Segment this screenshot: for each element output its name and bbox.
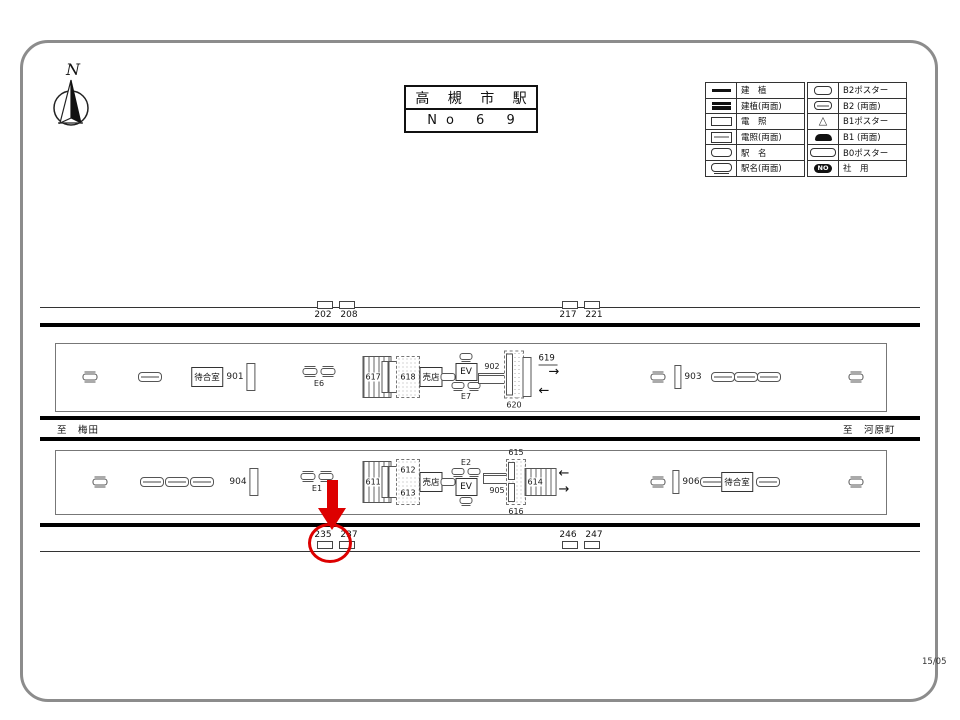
shape	[85, 381, 96, 382]
item-sym2	[651, 476, 666, 487]
item-sym2	[93, 476, 108, 487]
item-oval	[190, 477, 214, 487]
item-room: 待合室	[191, 367, 223, 387]
b2-poster-sign-icon	[757, 372, 781, 382]
shape	[460, 497, 473, 504]
track-line-top	[40, 307, 920, 308]
legend-symbol-cell	[808, 145, 839, 160]
shape	[653, 371, 664, 372]
exit-label: E7	[461, 392, 471, 401]
shape	[303, 471, 314, 472]
legend-symbol-cell	[706, 145, 737, 160]
item-arrows: 619→←	[539, 353, 560, 396]
exit-label: E1	[312, 484, 322, 493]
arrow-left-icon: ←	[559, 468, 570, 479]
b2-poster-sign-icon	[140, 477, 164, 487]
shape	[305, 376, 316, 377]
highlight-arrow	[327, 480, 338, 508]
shape	[562, 541, 600, 549]
item-oval	[711, 372, 735, 382]
sign-slot-icon	[562, 301, 578, 309]
shape	[93, 478, 108, 485]
sign-slot-icon	[339, 301, 355, 309]
shape	[653, 486, 664, 487]
stairs-area: 611	[363, 461, 392, 503]
item-numbar: 901	[226, 363, 255, 391]
position-number: 901	[226, 372, 243, 382]
legend-row: B0ポスター	[808, 145, 906, 161]
shape	[562, 301, 600, 309]
track-sign-marker: 246247	[558, 530, 604, 549]
item-dashedbox: 618	[396, 356, 420, 398]
shape	[737, 376, 755, 377]
station-name-sign-icon	[849, 371, 864, 382]
shape	[321, 471, 332, 472]
item-densho: 902	[478, 362, 506, 384]
shape: NO	[814, 164, 833, 173]
item-sym2	[83, 371, 98, 382]
position-number: 611	[365, 477, 382, 486]
legend-label: 社 用	[839, 161, 906, 176]
shape	[470, 390, 479, 391]
station-title: 高 槻 市 駅	[406, 87, 536, 108]
shape	[452, 468, 465, 475]
track-rail-1	[40, 323, 920, 327]
sign-slot-icon	[584, 301, 600, 309]
station-name-sign-icon	[303, 366, 318, 377]
small-sign-icon	[452, 468, 465, 477]
stairs-area: 617	[363, 356, 392, 398]
position-number: 613	[399, 488, 416, 497]
shape	[303, 368, 318, 375]
item-sym2	[651, 371, 666, 382]
shape	[851, 371, 862, 372]
densho-icon	[711, 117, 732, 126]
highlight-circle	[308, 523, 352, 563]
sign-board-icon	[523, 357, 532, 397]
station-diagram: N 高 槻 市 駅 No 6 9 建 植建植(両面)電 照電照(両面)駅 名駅名…	[0, 0, 960, 720]
track-sign-marker: 202208	[313, 301, 359, 320]
shape	[168, 481, 186, 482]
shape	[712, 89, 731, 93]
ekimei-ryomen-icon	[711, 163, 732, 174]
room-box: 売店	[419, 472, 442, 492]
legend-row: 建 植	[706, 83, 804, 99]
shape	[714, 173, 729, 174]
shape	[460, 497, 473, 506]
station-name-sign-icon	[301, 471, 316, 482]
shape	[95, 486, 106, 487]
shape	[849, 478, 864, 485]
sign-slot-icon	[317, 301, 333, 309]
item-ev: E2EV	[452, 458, 481, 506]
legend-label: 建 植	[737, 83, 804, 98]
sheet-code: 15/05	[922, 657, 947, 667]
legend-label: B2 (両面)	[839, 99, 906, 114]
shape	[711, 117, 732, 126]
shape	[143, 481, 161, 482]
item-vrect	[523, 357, 532, 397]
item-oval	[734, 372, 758, 382]
legend-table: 建 植建植(両面)電 照電照(両面)駅 名駅名(両面)	[705, 82, 805, 177]
legend-label: B2ポスター	[839, 83, 906, 98]
shape	[849, 373, 864, 380]
b2-poster-sign-icon	[734, 372, 758, 382]
shape	[651, 373, 666, 380]
station-name-sign-icon	[93, 476, 108, 487]
position-number: 902	[484, 362, 499, 371]
item-stairs: 617	[363, 356, 392, 398]
position-number: 903	[684, 372, 701, 382]
room-box: 売店	[419, 367, 442, 387]
b2-poster-sign-icon	[165, 477, 189, 487]
legend-label: B0ポスター	[839, 145, 906, 160]
station-name-sign-icon	[651, 371, 666, 382]
item-numbar2: 903	[674, 365, 701, 389]
legend-row: △B1ポスター	[808, 114, 906, 130]
shape	[759, 481, 777, 482]
shape	[470, 476, 479, 477]
track-rail-2	[40, 416, 920, 420]
shape	[460, 353, 473, 362]
kenshoku-ryomen-icon	[712, 102, 731, 110]
legend-symbol-cell	[706, 130, 737, 145]
room-box: 待合室	[191, 367, 223, 387]
sign-board-icon	[250, 468, 259, 496]
kenshoku-icon	[712, 89, 731, 93]
densho-ryomen-icon	[711, 132, 732, 143]
legend-symbol-cell	[706, 161, 737, 176]
shape	[714, 376, 732, 377]
destination-right: 至 河原町	[843, 422, 896, 436]
position-number: 208	[339, 310, 359, 320]
shape	[653, 381, 664, 382]
station-name-sign-icon	[321, 366, 336, 377]
shape	[141, 376, 159, 377]
shape	[712, 106, 731, 110]
station-number: No 6 9	[406, 108, 536, 131]
b2-ryomen-icon	[814, 101, 832, 110]
shape	[452, 468, 481, 477]
legend-symbol-cell	[706, 99, 737, 114]
planned-area	[504, 350, 524, 398]
exit-label: E6	[314, 379, 324, 388]
legend-row: NO社 用	[808, 161, 906, 176]
compass-icon	[48, 78, 96, 132]
shape	[651, 478, 666, 485]
position-number: 906	[682, 477, 699, 487]
legend-label: B1ポスター	[839, 114, 906, 129]
position-number: 202	[313, 310, 333, 320]
shape: ←→	[559, 468, 570, 495]
position-number: 612	[399, 466, 416, 475]
legend-row: 駅 名	[706, 145, 804, 161]
position-number: 617	[365, 372, 382, 381]
legend-row: B2ポスター	[808, 83, 906, 99]
shape	[85, 371, 96, 372]
shape	[452, 382, 481, 391]
shape	[712, 102, 731, 106]
shape	[760, 376, 778, 377]
arrow-left-icon: ←	[539, 385, 550, 396]
item-oval	[165, 477, 189, 487]
shape	[382, 466, 389, 498]
small-sign-icon	[460, 353, 473, 362]
legend-label: 電照(両面)	[737, 130, 804, 145]
shape: △	[819, 116, 827, 126]
legend-symbol-cell	[808, 99, 839, 114]
legend-label: 建植(両面)	[737, 99, 804, 114]
track-rail-3	[40, 437, 920, 441]
b2-poster-sign-icon	[190, 477, 214, 487]
shape	[321, 368, 336, 375]
item-dashedbars: 615616	[506, 448, 526, 516]
arrow-right-icon: →	[549, 366, 560, 377]
track-rail-4	[40, 523, 920, 527]
shape	[319, 473, 334, 480]
b2-poster-icon	[814, 86, 832, 95]
legend-label: 駅 名	[737, 145, 804, 160]
item-dashedbars: 620	[504, 350, 524, 409]
stairs-area: 614	[525, 468, 557, 496]
b2-poster-sign-icon	[138, 372, 162, 382]
shape	[479, 375, 505, 376]
legend-row: B1 (両面)	[808, 130, 906, 146]
shape	[462, 505, 471, 506]
shape	[317, 301, 355, 309]
shape: 202208	[313, 310, 359, 320]
shape	[382, 361, 389, 393]
item-sym2	[849, 476, 864, 487]
shape	[851, 486, 862, 487]
shape	[301, 473, 316, 480]
shape	[95, 476, 106, 477]
item-room: 待合室	[721, 472, 753, 492]
legend-row: 電 照	[706, 114, 804, 130]
shape	[305, 366, 316, 367]
station-name-sign-icon	[849, 476, 864, 487]
small-sign-icon	[452, 382, 465, 391]
b2-poster-sign-icon	[711, 372, 735, 382]
lit-sign-icon	[478, 373, 506, 384]
shape	[454, 476, 463, 477]
b0-poster-icon	[810, 148, 836, 157]
position-number: 615	[508, 448, 523, 457]
b2-poster-sign-icon	[756, 477, 780, 487]
legend-row: B2 (両面)	[808, 99, 906, 115]
shape	[814, 86, 832, 95]
shape	[303, 481, 314, 482]
shape	[711, 148, 732, 157]
shape	[323, 366, 334, 367]
item-stairs614: 614←→	[525, 468, 570, 496]
shape	[851, 381, 862, 382]
elevator-box: EV	[455, 478, 477, 496]
planned-area: 618	[396, 356, 420, 398]
item-numbar2: 906	[672, 470, 699, 494]
shape	[506, 353, 513, 395]
shape	[452, 382, 465, 389]
shape	[817, 105, 829, 106]
shape	[83, 373, 98, 380]
shape: 217221	[558, 310, 604, 320]
shape: 246247	[558, 530, 604, 540]
exit-label: E2	[461, 458, 471, 467]
legend-label: B1 (両面)	[839, 130, 906, 145]
shape	[703, 481, 721, 482]
position-number: 620	[506, 400, 521, 409]
shape	[711, 163, 732, 172]
position-number: 905	[489, 486, 504, 495]
b1-poster-icon: △	[819, 116, 827, 126]
room-box: 待合室	[721, 472, 753, 492]
shape	[323, 376, 334, 377]
item-ev: EVE7	[452, 353, 481, 401]
item-oval	[140, 477, 164, 487]
shape	[653, 476, 664, 477]
small-sign-icon	[468, 468, 481, 477]
legend-label: 電 照	[737, 114, 804, 129]
sign-slot-icon	[562, 541, 578, 549]
no-badge-icon: NO	[814, 164, 833, 173]
shape	[462, 361, 471, 362]
position-number: 221	[584, 310, 604, 320]
destination-left: 至 梅田	[57, 422, 99, 436]
arrow-right-icon: →	[559, 484, 570, 495]
elevator-box: EV	[455, 363, 477, 381]
item-oval	[756, 477, 780, 487]
station-name-sign-icon	[83, 371, 98, 382]
shape	[711, 132, 732, 143]
item-numbar: 904	[229, 468, 258, 496]
small-sign-icon	[460, 497, 473, 506]
sign-slot-icon	[584, 541, 600, 549]
shape	[810, 148, 836, 157]
legend-label: 駅名(両面)	[737, 161, 804, 176]
legend: 建 植建植(両面)電 照電照(両面)駅 名駅名(両面)B2ポスターB2 (両面)…	[705, 82, 907, 177]
position-number: 247	[584, 530, 604, 540]
item-sym2	[849, 371, 864, 382]
sign-board-icon	[672, 470, 679, 494]
planned-area	[506, 459, 526, 505]
legend-symbol-cell: △	[808, 114, 839, 129]
track-line-bottom	[40, 551, 920, 552]
legend-symbol-cell	[706, 114, 737, 129]
shape	[460, 353, 473, 360]
legend-row: 建植(両面)	[706, 99, 804, 115]
item-oval	[138, 372, 162, 382]
item-room: 売店	[419, 472, 442, 492]
track-sign-marker: 217221	[558, 301, 604, 320]
shape	[508, 462, 515, 481]
item-sympair: E6	[303, 366, 336, 388]
item-room: 売店	[419, 367, 442, 387]
sign-board-icon	[674, 365, 681, 389]
legend-symbol-cell	[706, 83, 737, 98]
shape	[851, 476, 862, 477]
sign-board-icon	[247, 363, 256, 391]
position-number: 904	[229, 477, 246, 487]
shape	[193, 481, 211, 482]
planned-area: 612613	[396, 459, 420, 505]
item-oval	[757, 372, 781, 382]
station-title-box: 高 槻 市 駅 No 6 9	[404, 85, 538, 133]
legend-row: 電照(両面)	[706, 130, 804, 146]
shape	[508, 483, 515, 502]
shape	[468, 468, 481, 475]
ekimei-icon	[711, 148, 732, 157]
legend-row: 駅名(両面)	[706, 161, 804, 176]
position-number: 246	[558, 530, 578, 540]
legend-symbol-cell: NO	[808, 161, 839, 176]
item-dashedbox2: 612613	[396, 459, 420, 505]
legend-table: B2ポスターB2 (両面)△B1ポスターB1 (両面)B0ポスターNO社 用	[807, 82, 907, 177]
b1-ryomen-icon	[815, 134, 832, 141]
legend-symbol-cell	[808, 130, 839, 145]
shape	[815, 134, 832, 141]
shape	[454, 390, 463, 391]
item-stairs: 611	[363, 461, 392, 503]
position-number: 618	[399, 372, 416, 381]
position-number: 614	[527, 477, 544, 486]
compass-north-label: N	[66, 60, 80, 79]
legend-symbol-cell	[808, 83, 839, 98]
position-number: 616	[508, 507, 523, 516]
position-number: 217	[558, 310, 578, 320]
shape	[814, 101, 832, 110]
station-name-sign-icon	[651, 476, 666, 487]
shape	[714, 137, 729, 138]
sign-pair	[303, 366, 336, 377]
